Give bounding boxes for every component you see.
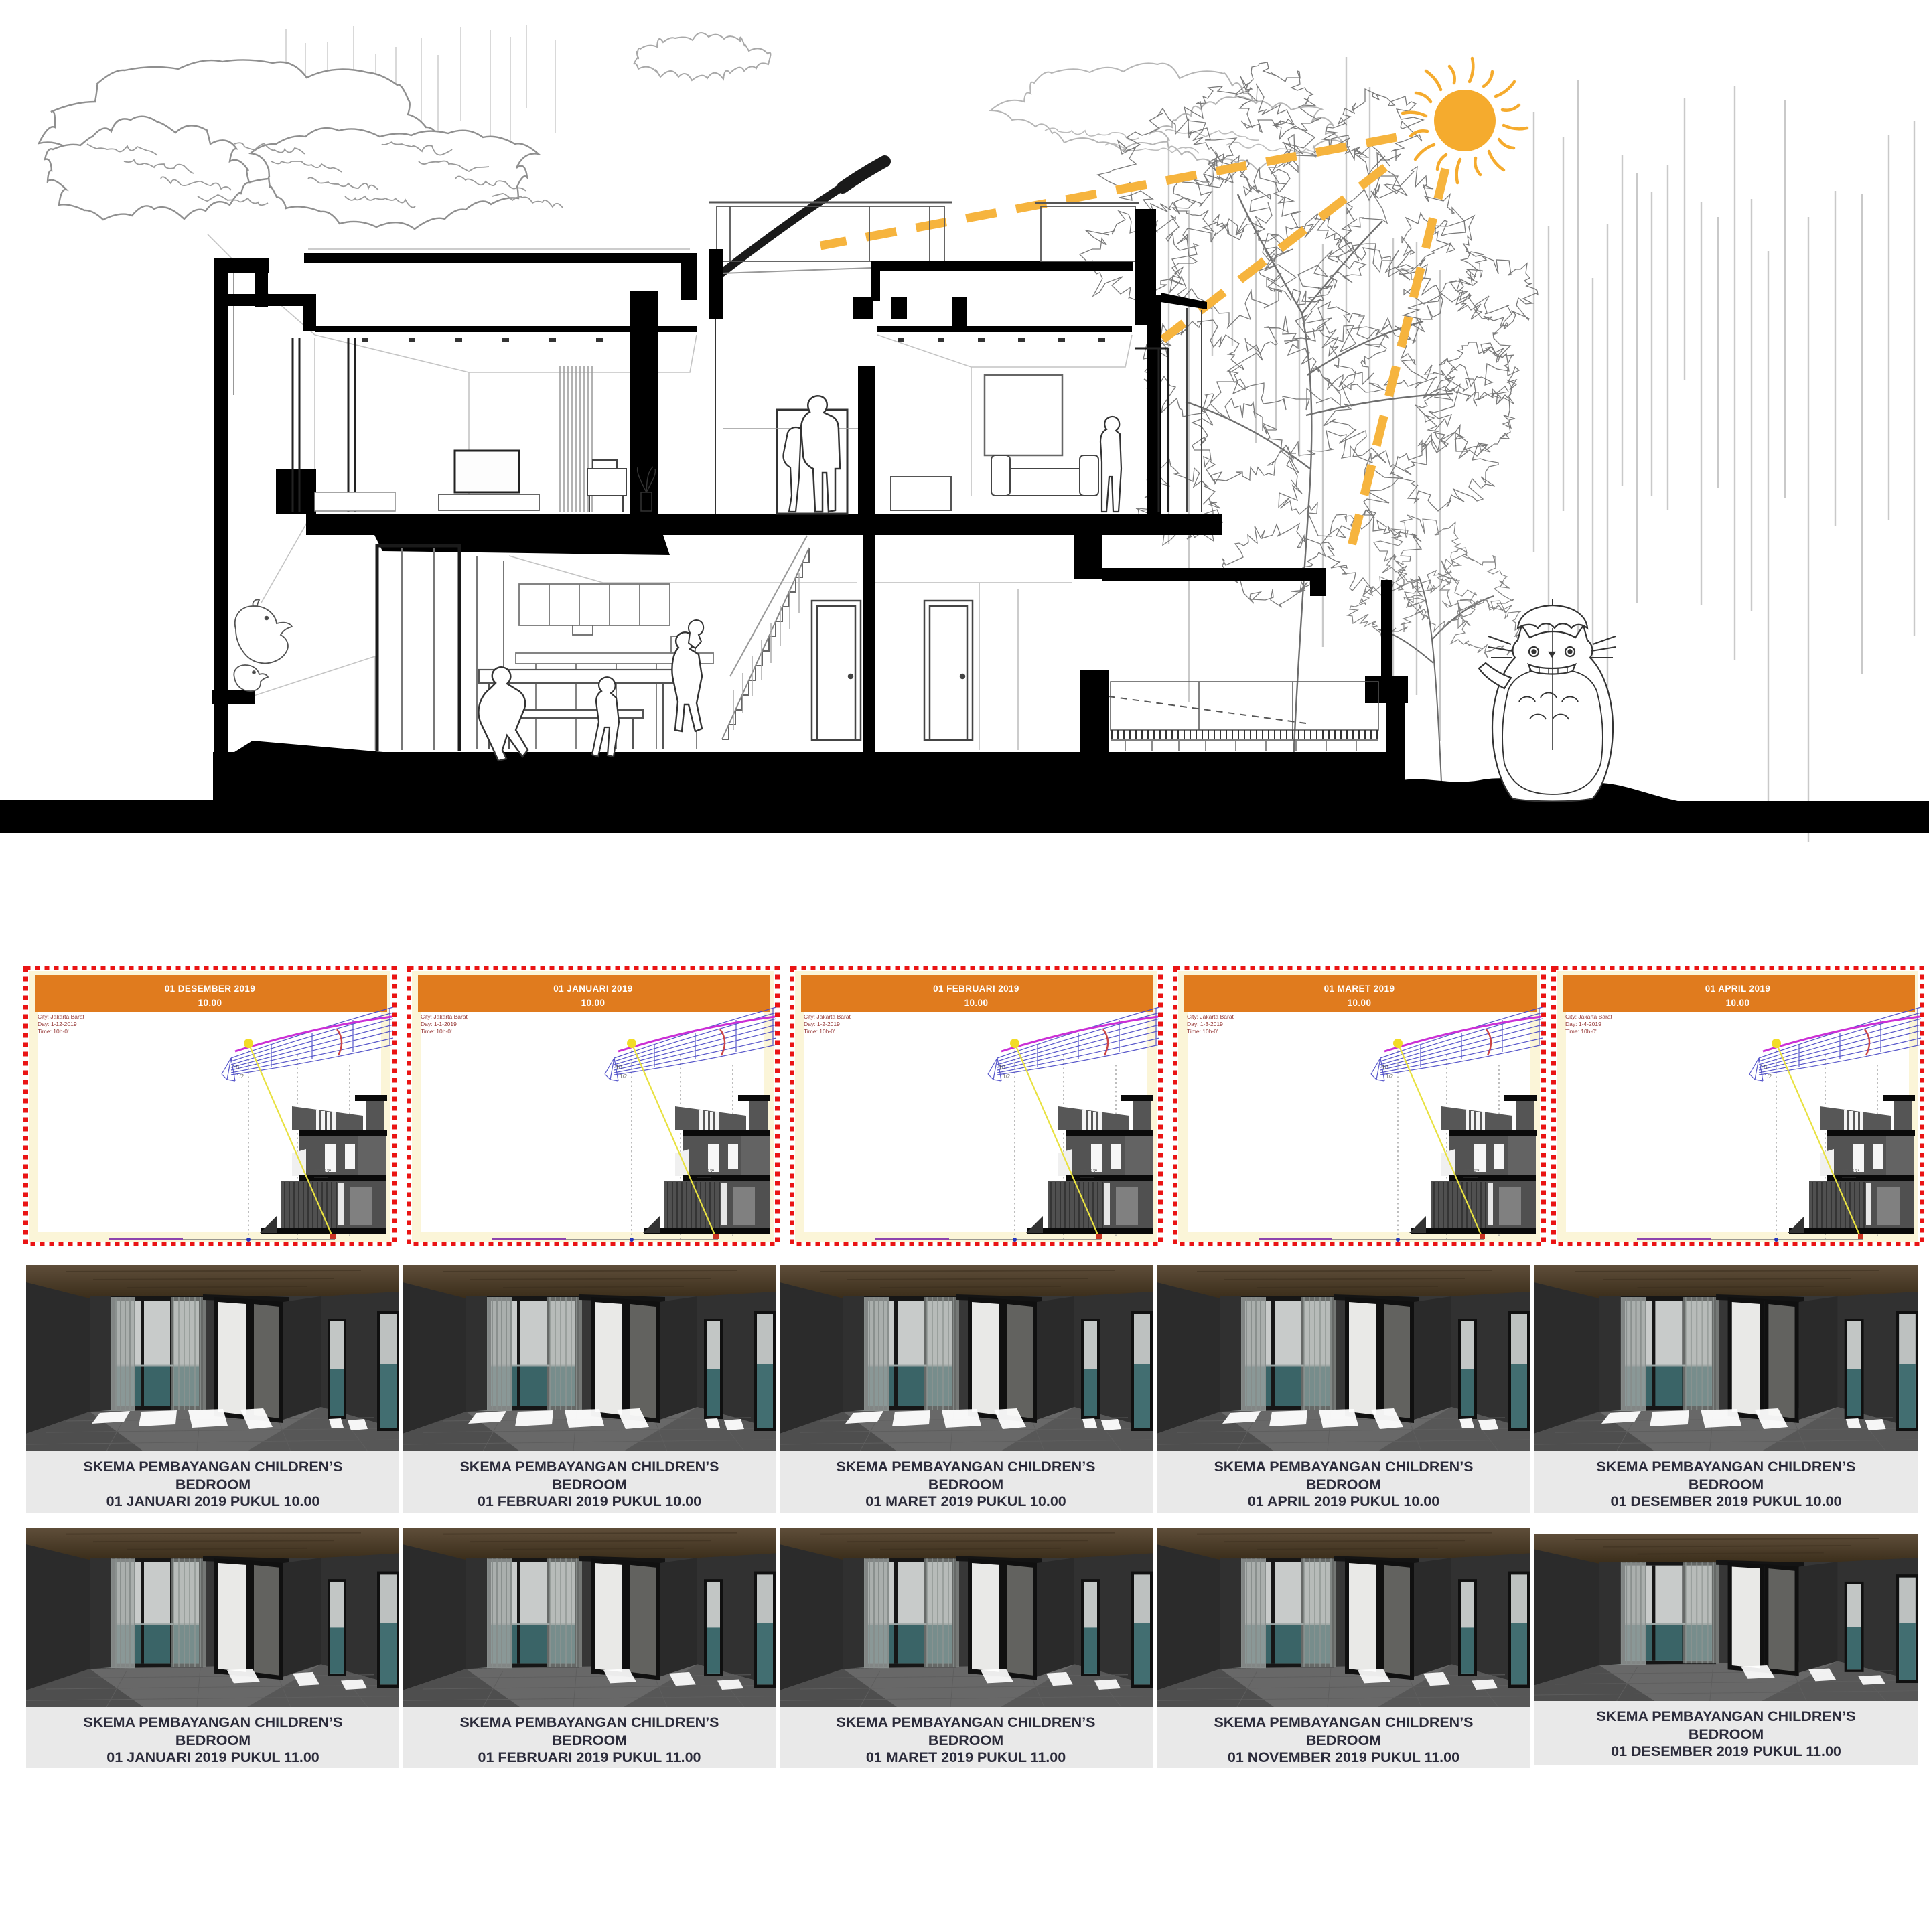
svg-text:BEDROOM: BEDROOM — [552, 1732, 627, 1749]
svg-text:Day: 1-2-2019: Day: 1-2-2019 — [804, 1021, 840, 1027]
svg-text:01 FEBRUARI 2019 PUKUL 11.00: 01 FEBRUARI 2019 PUKUL 11.00 — [478, 1749, 701, 1765]
svg-text:City: Jakarta Barat: City: Jakarta Barat — [1565, 1013, 1613, 1020]
svg-text:10.00: 10.00 — [198, 998, 222, 1008]
svg-text:Time: 10h-0': Time: 10h-0' — [38, 1028, 69, 1035]
svg-text:SKEMA PEMBAYANGAN CHILDREN’S: SKEMA PEMBAYANGAN CHILDREN’S — [459, 1459, 719, 1475]
svg-text:Time: 10h-0': Time: 10h-0' — [804, 1028, 835, 1035]
svg-text:SKEMA PEMBAYANGAN CHILDREN’S: SKEMA PEMBAYANGAN CHILDREN’S — [83, 1459, 342, 1475]
svg-text:01 JANUARI 2019 PUKUL 11.00: 01 JANUARI 2019 PUKUL 11.00 — [106, 1749, 319, 1765]
svg-text:01 FEBRUARI 2019 PUKUL 10.00: 01 FEBRUARI 2019 PUKUL 10.00 — [478, 1493, 701, 1509]
svg-text:BEDROOM: BEDROOM — [1689, 1477, 1764, 1493]
svg-text:01 MARET 2019: 01 MARET 2019 — [1324, 984, 1395, 994]
svg-text:SKEMA PEMBAYANGAN CHILDREN’S: SKEMA PEMBAYANGAN CHILDREN’S — [1214, 1459, 1473, 1475]
svg-text:01 FEBRUARI 2019: 01 FEBRUARI 2019 — [933, 984, 1019, 994]
svg-text:01 DESEMBER 2019: 01 DESEMBER 2019 — [165, 984, 255, 994]
svg-text:BEDROOM: BEDROOM — [1306, 1477, 1381, 1493]
svg-text:City: Jakarta Barat: City: Jakarta Barat — [421, 1013, 468, 1020]
svg-text:Time: 10h-0': Time: 10h-0' — [1187, 1028, 1218, 1035]
svg-text:BEDROOM: BEDROOM — [175, 1732, 251, 1749]
svg-text:BEDROOM: BEDROOM — [552, 1477, 627, 1493]
svg-text:Time: 10h-0': Time: 10h-0' — [1565, 1028, 1597, 1035]
svg-text:BEDROOM: BEDROOM — [175, 1477, 251, 1493]
svg-text:01 APRIL 2019 PUKUL 10.00: 01 APRIL 2019 PUKUL 10.00 — [1248, 1493, 1439, 1509]
svg-text:SKEMA PEMBAYANGAN CHILDREN’S: SKEMA PEMBAYANGAN CHILDREN’S — [1214, 1714, 1473, 1730]
svg-text:City: Jakarta Barat: City: Jakarta Barat — [38, 1013, 85, 1020]
svg-text:BEDROOM: BEDROOM — [928, 1477, 1003, 1493]
svg-text:SKEMA PEMBAYANGAN CHILDREN’S: SKEMA PEMBAYANGAN CHILDREN’S — [1596, 1708, 1855, 1724]
svg-text:01 APRIL 2019: 01 APRIL 2019 — [1705, 984, 1771, 994]
svg-text:01 MARET 2019 PUKUL 11.00: 01 MARET 2019 PUKUL 11.00 — [866, 1749, 1066, 1765]
svg-text:Time: 10h-0': Time: 10h-0' — [421, 1028, 452, 1035]
svg-text:10.00: 10.00 — [964, 998, 989, 1008]
svg-text:SKEMA PEMBAYANGAN CHILDREN’S: SKEMA PEMBAYANGAN CHILDREN’S — [459, 1714, 719, 1730]
svg-text:BEDROOM: BEDROOM — [1689, 1726, 1764, 1742]
svg-text:City: Jakarta Barat: City: Jakarta Barat — [804, 1013, 851, 1020]
svg-text:01 DESEMBER 2019 PUKUL 10.00: 01 DESEMBER 2019 PUKUL 10.00 — [1611, 1493, 1842, 1509]
svg-text:Day: 1-4-2019: Day: 1-4-2019 — [1565, 1021, 1601, 1027]
svg-text:SKEMA PEMBAYANGAN CHILDREN’S: SKEMA PEMBAYANGAN CHILDREN’S — [1596, 1459, 1855, 1475]
svg-text:SKEMA PEMBAYANGAN CHILDREN’S: SKEMA PEMBAYANGAN CHILDREN’S — [836, 1459, 1095, 1475]
svg-text:01 JANUARI 2019: 01 JANUARI 2019 — [553, 984, 633, 994]
svg-text:01 MARET 2019 PUKUL 10.00: 01 MARET 2019 PUKUL 10.00 — [865, 1493, 1066, 1509]
svg-text:10.00: 10.00 — [1348, 998, 1372, 1008]
svg-text:10.00: 10.00 — [581, 998, 605, 1008]
svg-text:SKEMA PEMBAYANGAN CHILDREN’S: SKEMA PEMBAYANGAN CHILDREN’S — [83, 1714, 342, 1730]
svg-text:Day: 1-1-2019: Day: 1-1-2019 — [421, 1021, 457, 1027]
svg-text:SKEMA PEMBAYANGAN CHILDREN’S: SKEMA PEMBAYANGAN CHILDREN’S — [836, 1714, 1095, 1730]
svg-text:Day: 1-3-2019: Day: 1-3-2019 — [1187, 1021, 1223, 1027]
svg-text:10.00: 10.00 — [1726, 998, 1750, 1008]
svg-text:01 NOVEMBER 2019 PUKUL 11.00: 01 NOVEMBER 2019 PUKUL 11.00 — [1228, 1749, 1459, 1765]
svg-text:City: Jakarta Barat: City: Jakarta Barat — [1187, 1013, 1234, 1020]
svg-text:01 DESEMBER 2019 PUKUL 11.00: 01 DESEMBER 2019 PUKUL 11.00 — [1611, 1743, 1841, 1759]
svg-text:01 JANUARI 2019 PUKUL 10.00: 01 JANUARI 2019 PUKUL 10.00 — [106, 1493, 320, 1509]
svg-text:Day: 1-12-2019: Day: 1-12-2019 — [38, 1021, 77, 1027]
svg-text:BEDROOM: BEDROOM — [928, 1732, 1003, 1749]
svg-text:BEDROOM: BEDROOM — [1306, 1732, 1381, 1749]
